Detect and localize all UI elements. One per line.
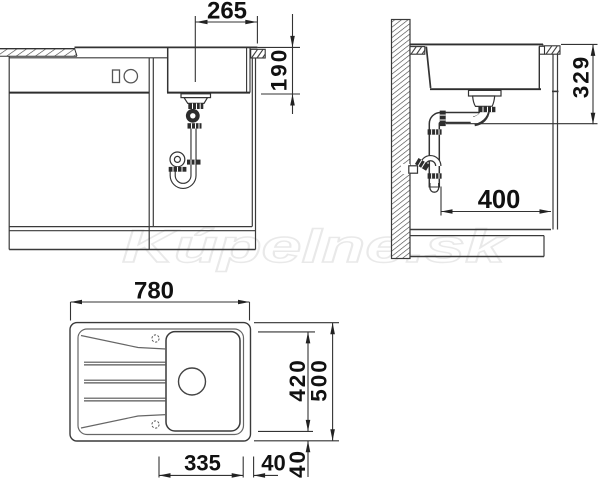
- svg-text:329: 329: [569, 55, 594, 99]
- svg-text:335: 335: [184, 451, 221, 476]
- svg-text:500: 500: [307, 358, 332, 402]
- svg-text:265: 265: [207, 0, 247, 25]
- svg-text:Kúpelne.sk: Kúpelne.sk: [122, 220, 509, 272]
- svg-text:40: 40: [261, 451, 285, 476]
- svg-text:190: 190: [267, 48, 292, 92]
- svg-text:40: 40: [285, 449, 310, 478]
- svg-text:780: 780: [134, 278, 174, 305]
- svg-text:400: 400: [478, 186, 521, 214]
